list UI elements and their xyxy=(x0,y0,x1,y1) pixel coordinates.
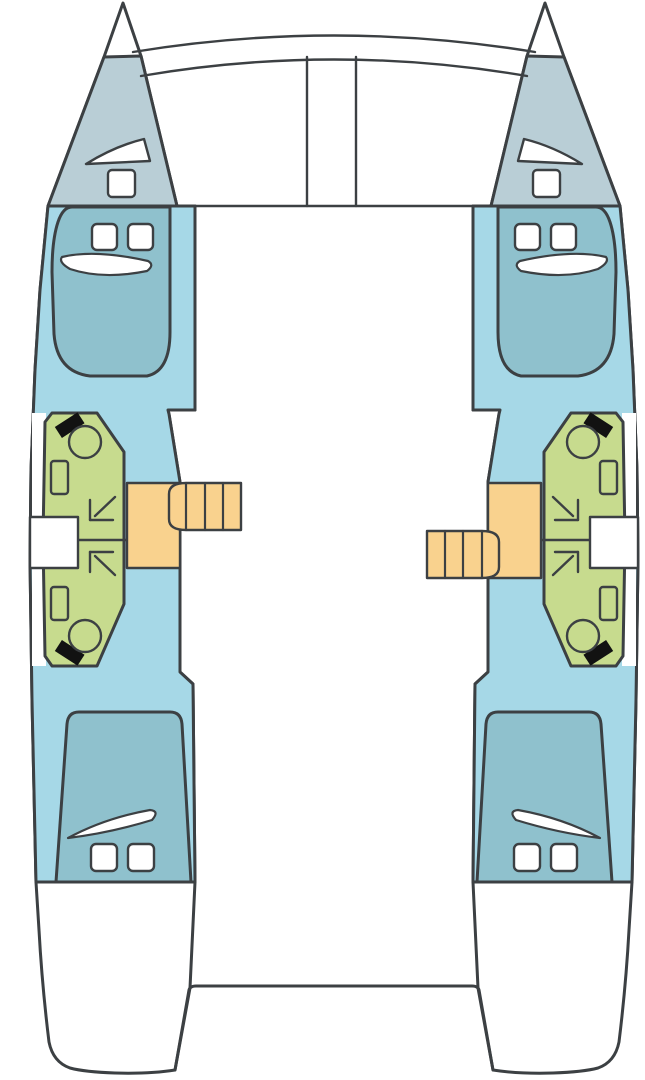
port-side-gate-opening xyxy=(30,517,78,568)
port-aft-berth xyxy=(56,712,191,882)
catamaran-deck-plan xyxy=(0,0,645,1080)
port-bow-square-hatch-icon xyxy=(108,170,135,197)
forward-crossbeam-aft-edge xyxy=(141,60,527,77)
port-aft-cabin-window xyxy=(91,844,117,871)
port-companionway xyxy=(127,483,241,568)
starboard-companionway xyxy=(427,483,541,578)
port-toilet-aft-bowl-icon xyxy=(69,620,101,652)
port-sink-aft-icon xyxy=(51,587,68,620)
forward-crossbeam-front-edge xyxy=(133,36,535,53)
plan-root xyxy=(30,3,638,1073)
port-toilet-forward-bowl-icon xyxy=(69,426,101,458)
port-sink-forward-icon xyxy=(51,461,68,494)
transom-platform xyxy=(175,986,493,1070)
port-forward-cabin-window xyxy=(92,224,117,250)
port-aft-cabin-window xyxy=(128,844,154,871)
port-forward-cabin-window xyxy=(128,224,153,250)
deck-plan-canvas xyxy=(0,0,645,1080)
